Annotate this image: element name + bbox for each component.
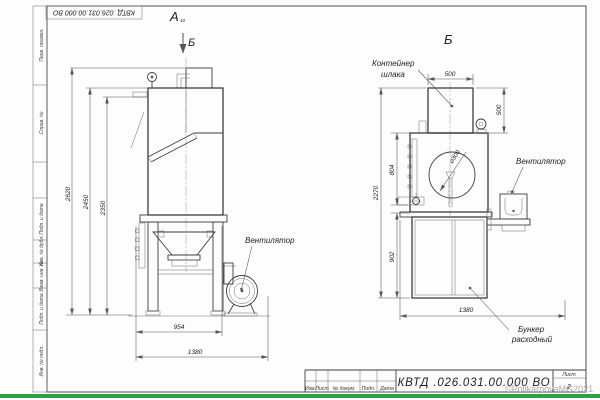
dim-b-1380: 1380 — [400, 220, 565, 320]
side-lever — [131, 112, 144, 148]
svg-text:1380: 1380 — [188, 349, 203, 356]
top-stamp: КВТД .026.031.00.000 ВО — [46, 6, 142, 19]
tb-col-dokum: № докум. — [333, 386, 356, 392]
view-a-label-sub: 10 — [180, 18, 186, 23]
side-field-podp-data-1: Подп. и дата — [39, 203, 45, 235]
small-motor-icon — [476, 119, 486, 134]
dim-b-500-right: 500 — [476, 88, 508, 133]
dim-a-1380: 1380 — [136, 296, 268, 361]
tb-col-list: Лист — [314, 386, 329, 392]
support-stand — [140, 215, 227, 315]
side-field-vzam-inv: Взам. инв. № — [39, 260, 45, 292]
dim-b-2270: 2270 — [373, 88, 426, 298]
tb-col-data: Дата — [379, 386, 394, 392]
view-b-arrow-label: Б — [188, 37, 195, 49]
hopper-label: Бункер расходный — [469, 287, 553, 344]
drain-valve — [398, 193, 424, 205]
machine-side-view: Вентилятор 2620 2450 2350 954 — [65, 58, 295, 361]
drawing-sheet: Перв. примен. Справ. № Подп. и дата Инв.… — [0, 0, 600, 400]
tb-sheet-label: Лист — [561, 372, 576, 378]
svg-text:2270: 2270 — [373, 185, 380, 201]
svg-text:Вентилятор: Вентилятор — [245, 236, 295, 245]
svg-text:Вентилятор: Вентилятор — [516, 157, 566, 166]
dim-b-902: 902 — [389, 213, 410, 298]
dim-b-804: 804 — [389, 133, 410, 205]
dim-a-2450: 2450 — [83, 88, 148, 315]
eye-bolt-icon — [148, 73, 157, 89]
svg-text:расходный: расходный — [511, 335, 553, 344]
svg-text:1380: 1380 — [459, 307, 474, 314]
diameter-label: ⌀300 — [440, 149, 466, 191]
side-field-sprav-n: Справ. № — [39, 111, 45, 134]
fan-side-view — [221, 263, 258, 316]
svg-text:Бункер: Бункер — [518, 325, 545, 334]
svg-text:2450: 2450 — [83, 194, 90, 210]
fan-label-b: Вентилятор — [511, 157, 566, 193]
top-duct — [177, 68, 212, 88]
base-plate — [400, 212, 492, 217]
tb-col-podp: Подп. — [362, 386, 376, 392]
svg-text:902: 902 — [389, 251, 396, 262]
svg-text:2620: 2620 — [65, 186, 72, 202]
fan-front-view — [487, 191, 530, 231]
fan-label-a: Вентилятор — [240, 236, 295, 290]
drawing-frame: Перв. примен. Справ. № Подп. и дата Инв.… — [33, 6, 586, 392]
dim-b-500-top: 500 — [428, 71, 473, 85]
cabinet-outline — [131, 88, 223, 215]
svg-text:А: А — [169, 9, 179, 24]
svg-text:шлака: шлака — [381, 70, 405, 79]
bolt-strip — [136, 223, 146, 268]
slag-container — [428, 88, 473, 133]
watermark: ©PolikarpovaMG2021 — [505, 384, 600, 394]
dim-a-2350: 2350 — [66, 97, 148, 315]
view-b-title: Б — [444, 32, 453, 47]
footer-green-bar — [0, 394, 600, 398]
view-b-direction-marker: Б — [183, 33, 195, 53]
dim-a-2620: 2620 — [65, 68, 185, 315]
dim-a-954: 954 — [136, 226, 222, 336]
view-a-label: А 10 — [169, 9, 186, 24]
top-stamp-designation: КВТД .026.031.00.000 ВО — [53, 9, 135, 16]
bunker-front-view — [412, 217, 487, 298]
svg-text:Контейнер: Контейнер — [372, 59, 415, 68]
svg-text:954: 954 — [174, 324, 185, 331]
side-field-inv-podl: Инв. № подл. — [39, 345, 45, 376]
svg-text:500: 500 — [496, 104, 503, 115]
side-field-perv-primen: Перв. примен. — [39, 28, 45, 61]
side-field-podp-data-2: Подп. и дата — [39, 293, 45, 325]
roof-stub — [419, 121, 426, 133]
svg-text:2350: 2350 — [100, 200, 107, 216]
machine-front-view: Контейнер шлака Вентилятор Бункер расход… — [372, 59, 566, 344]
container-label: Контейнер шлака — [372, 59, 453, 107]
svg-text:500: 500 — [445, 71, 456, 78]
body-front-view — [410, 133, 488, 212]
svg-text:804: 804 — [389, 164, 396, 175]
